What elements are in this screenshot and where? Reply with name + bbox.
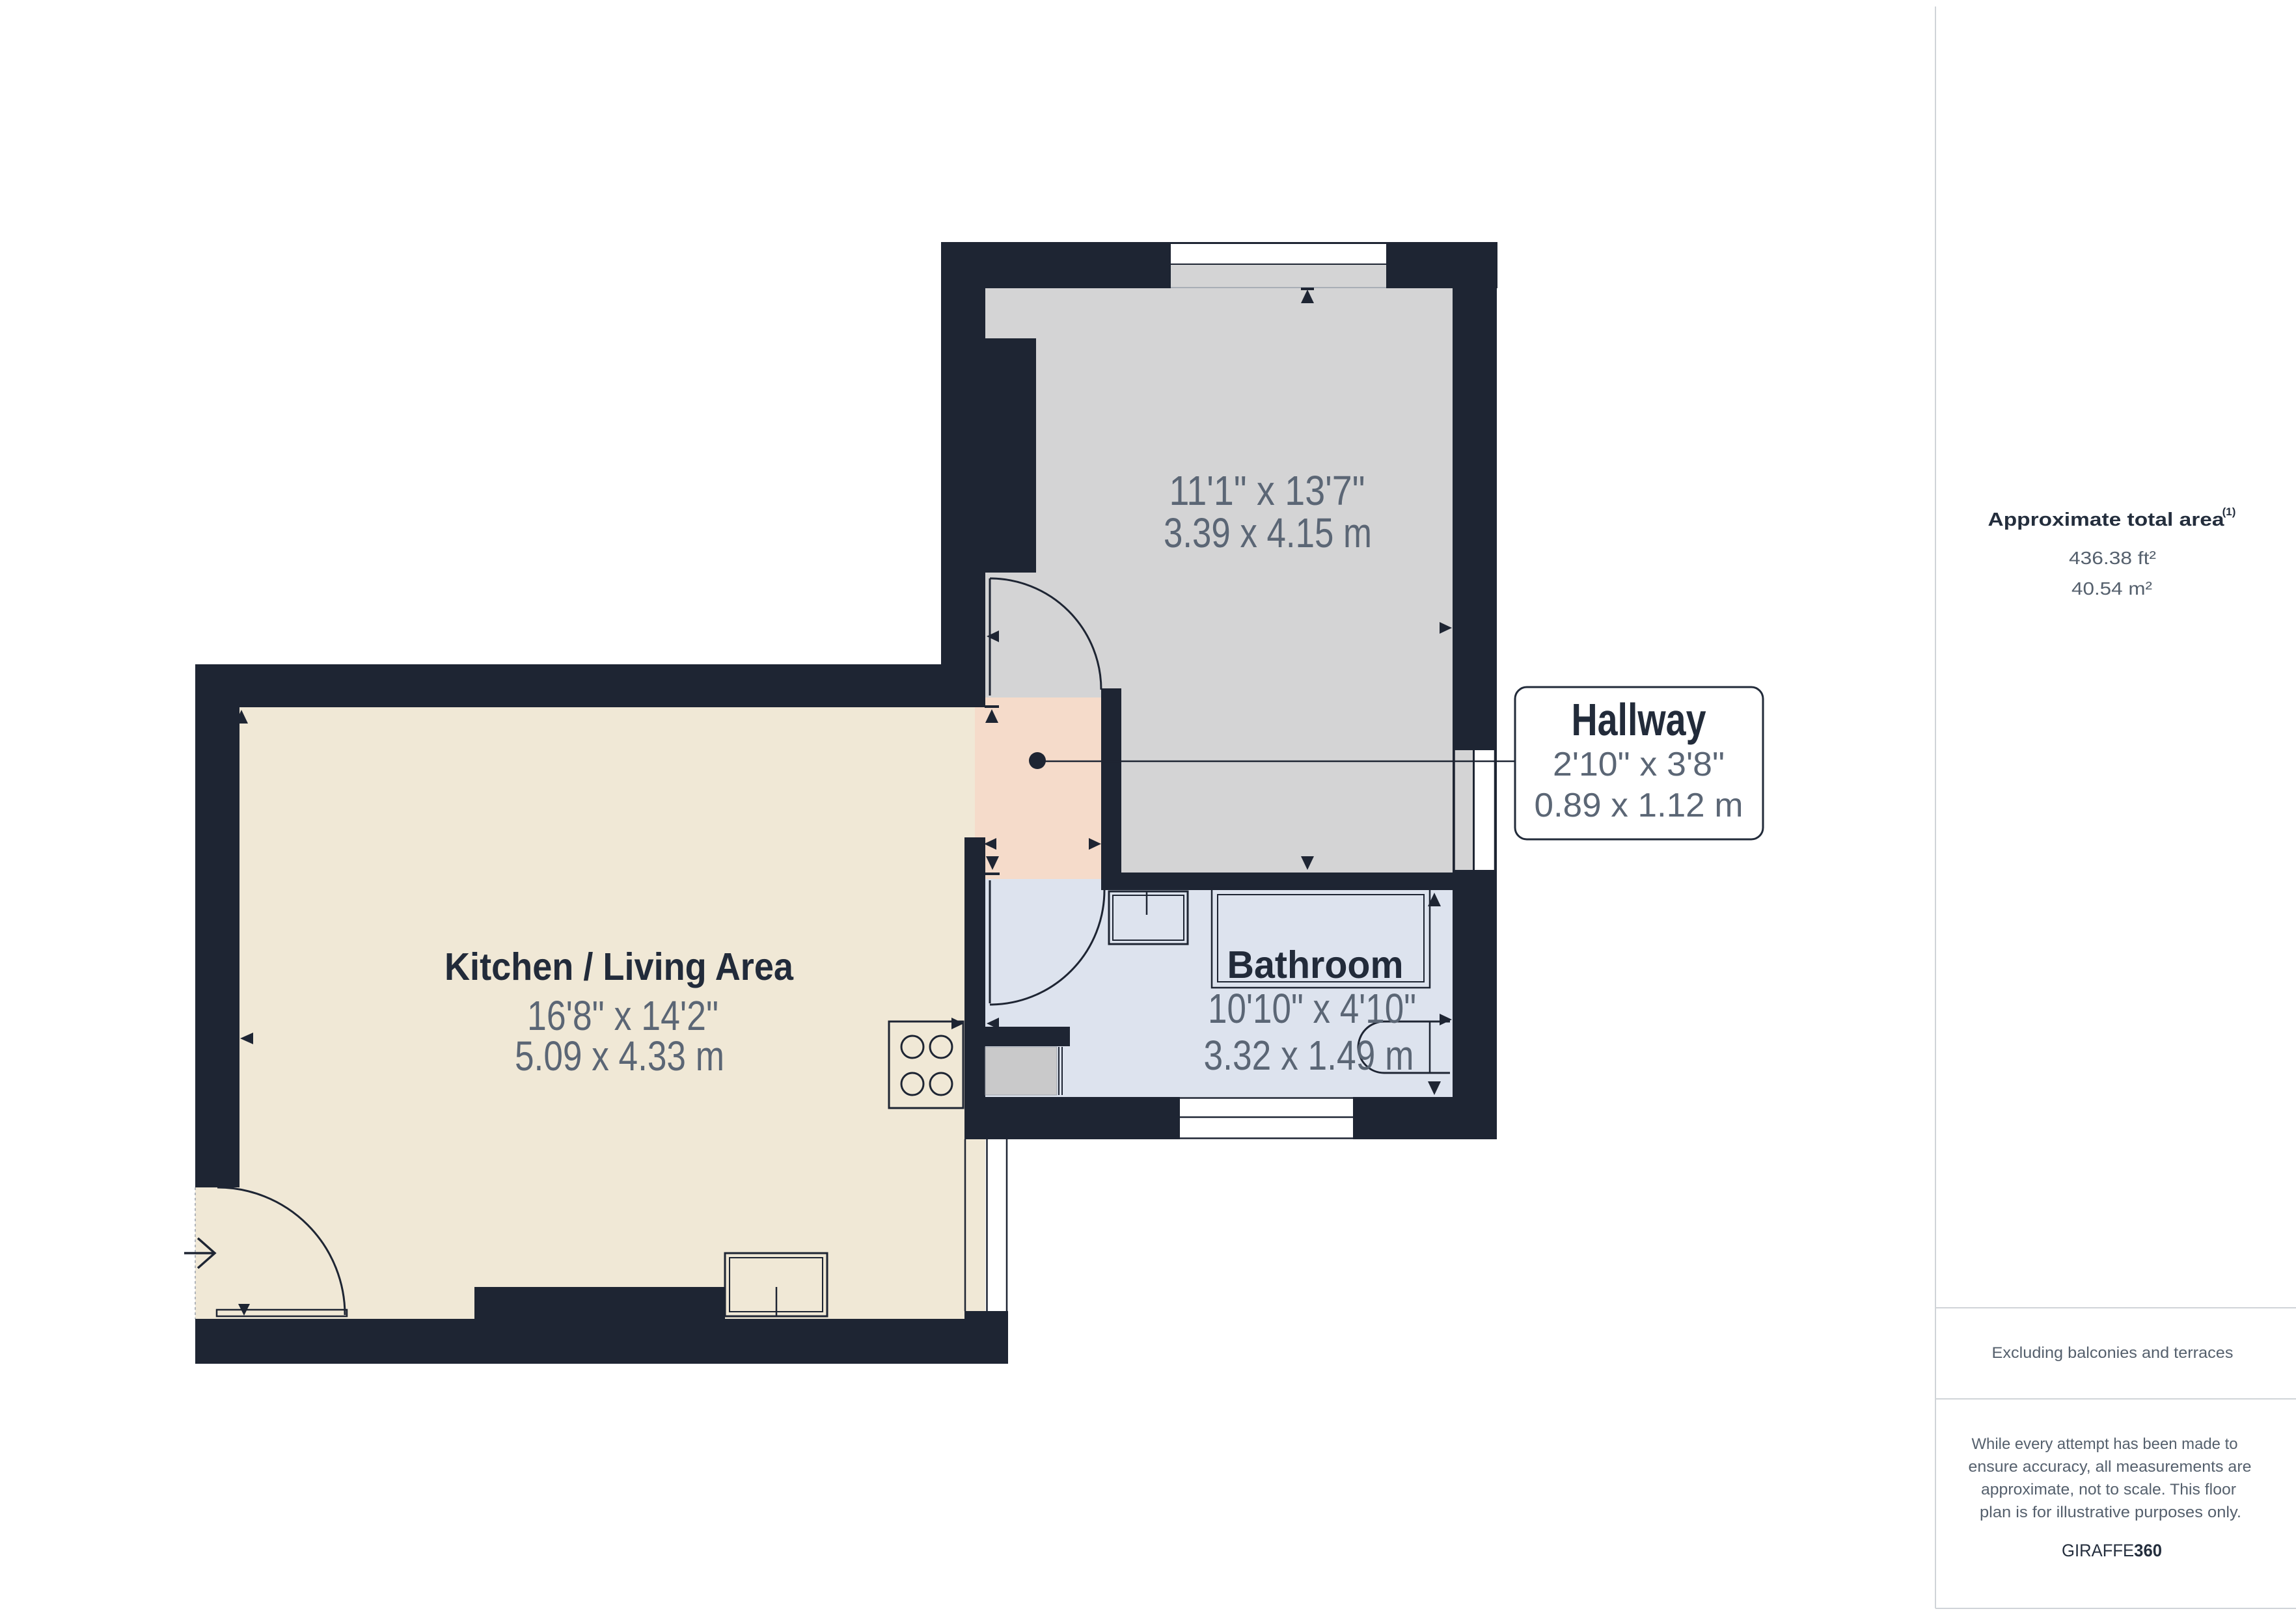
svg-text:10'10" x 4'10": 10'10" x 4'10": [1208, 985, 1416, 1032]
svg-text:(1): (1): [2222, 506, 2236, 518]
svg-text:11'1" x 13'7": 11'1" x 13'7": [1169, 467, 1365, 514]
svg-text:Excluding balconies and terrac: Excluding balconies and terraces: [1992, 1344, 2234, 1362]
svg-text:40.54 m²: 40.54 m²: [2071, 578, 2152, 599]
svg-text:0.89 x 1.12 m: 0.89 x 1.12 m: [1535, 787, 1743, 824]
svg-text:Approximate total area: Approximate total area: [1988, 509, 2225, 530]
svg-text:436.38 ft²: 436.38 ft²: [2069, 548, 2156, 568]
svg-text:2'10" x 3'8": 2'10" x 3'8": [1553, 746, 1725, 783]
svg-text:While every attempt has been m: While every attempt has been made to: [1972, 1435, 2238, 1453]
svg-text:approximate, not to scale. Thi: approximate, not to scale. This floor: [1981, 1481, 2236, 1498]
svg-text:Kitchen / Living Area: Kitchen / Living Area: [444, 945, 794, 988]
svg-text:3.32 x 1.49 m: 3.32 x 1.49 m: [1204, 1032, 1414, 1079]
svg-text:ensure accuracy, all measureme: ensure accuracy, all measurements are: [1969, 1458, 2252, 1476]
svg-text:Bathroom: Bathroom: [1227, 943, 1404, 986]
svg-text:GIRAFFE360: GIRAFFE360: [2062, 1541, 2162, 1560]
svg-text:3.39 x 4.15 m: 3.39 x 4.15 m: [1164, 509, 1372, 556]
svg-text:Hallway: Hallway: [1572, 694, 1706, 745]
svg-text:5.09 x 4.33 m: 5.09 x 4.33 m: [515, 1033, 724, 1079]
svg-text:plan is for illustrative purpo: plan is for illustrative purposes only.: [1980, 1504, 2241, 1521]
